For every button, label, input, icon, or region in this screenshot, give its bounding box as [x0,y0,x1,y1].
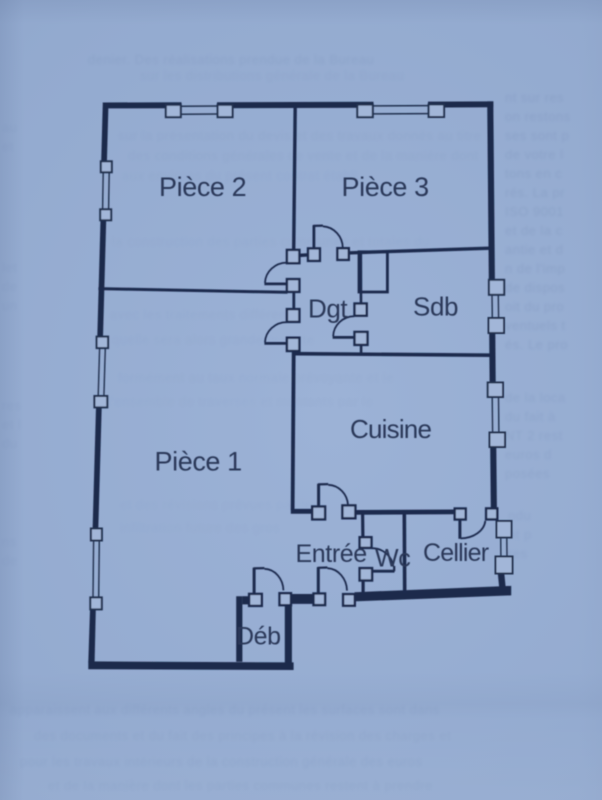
svg-text:Pièce 1: Pièce 1 [155,447,242,477]
svg-text:Pièce 3: Pièce 3 [342,172,429,202]
svg-text:Sdb: Sdb [413,292,458,322]
svg-text:Déb: Déb [236,623,281,651]
svg-text:Wc: Wc [375,545,410,573]
svg-text:Pièce 2: Pièce 2 [159,172,246,202]
svg-text:Dgt: Dgt [308,294,348,324]
svg-text:Cellier: Cellier [423,539,489,567]
svg-text:Cuisine: Cuisine [350,414,431,444]
svg-text:Entrée: Entrée [296,540,367,568]
